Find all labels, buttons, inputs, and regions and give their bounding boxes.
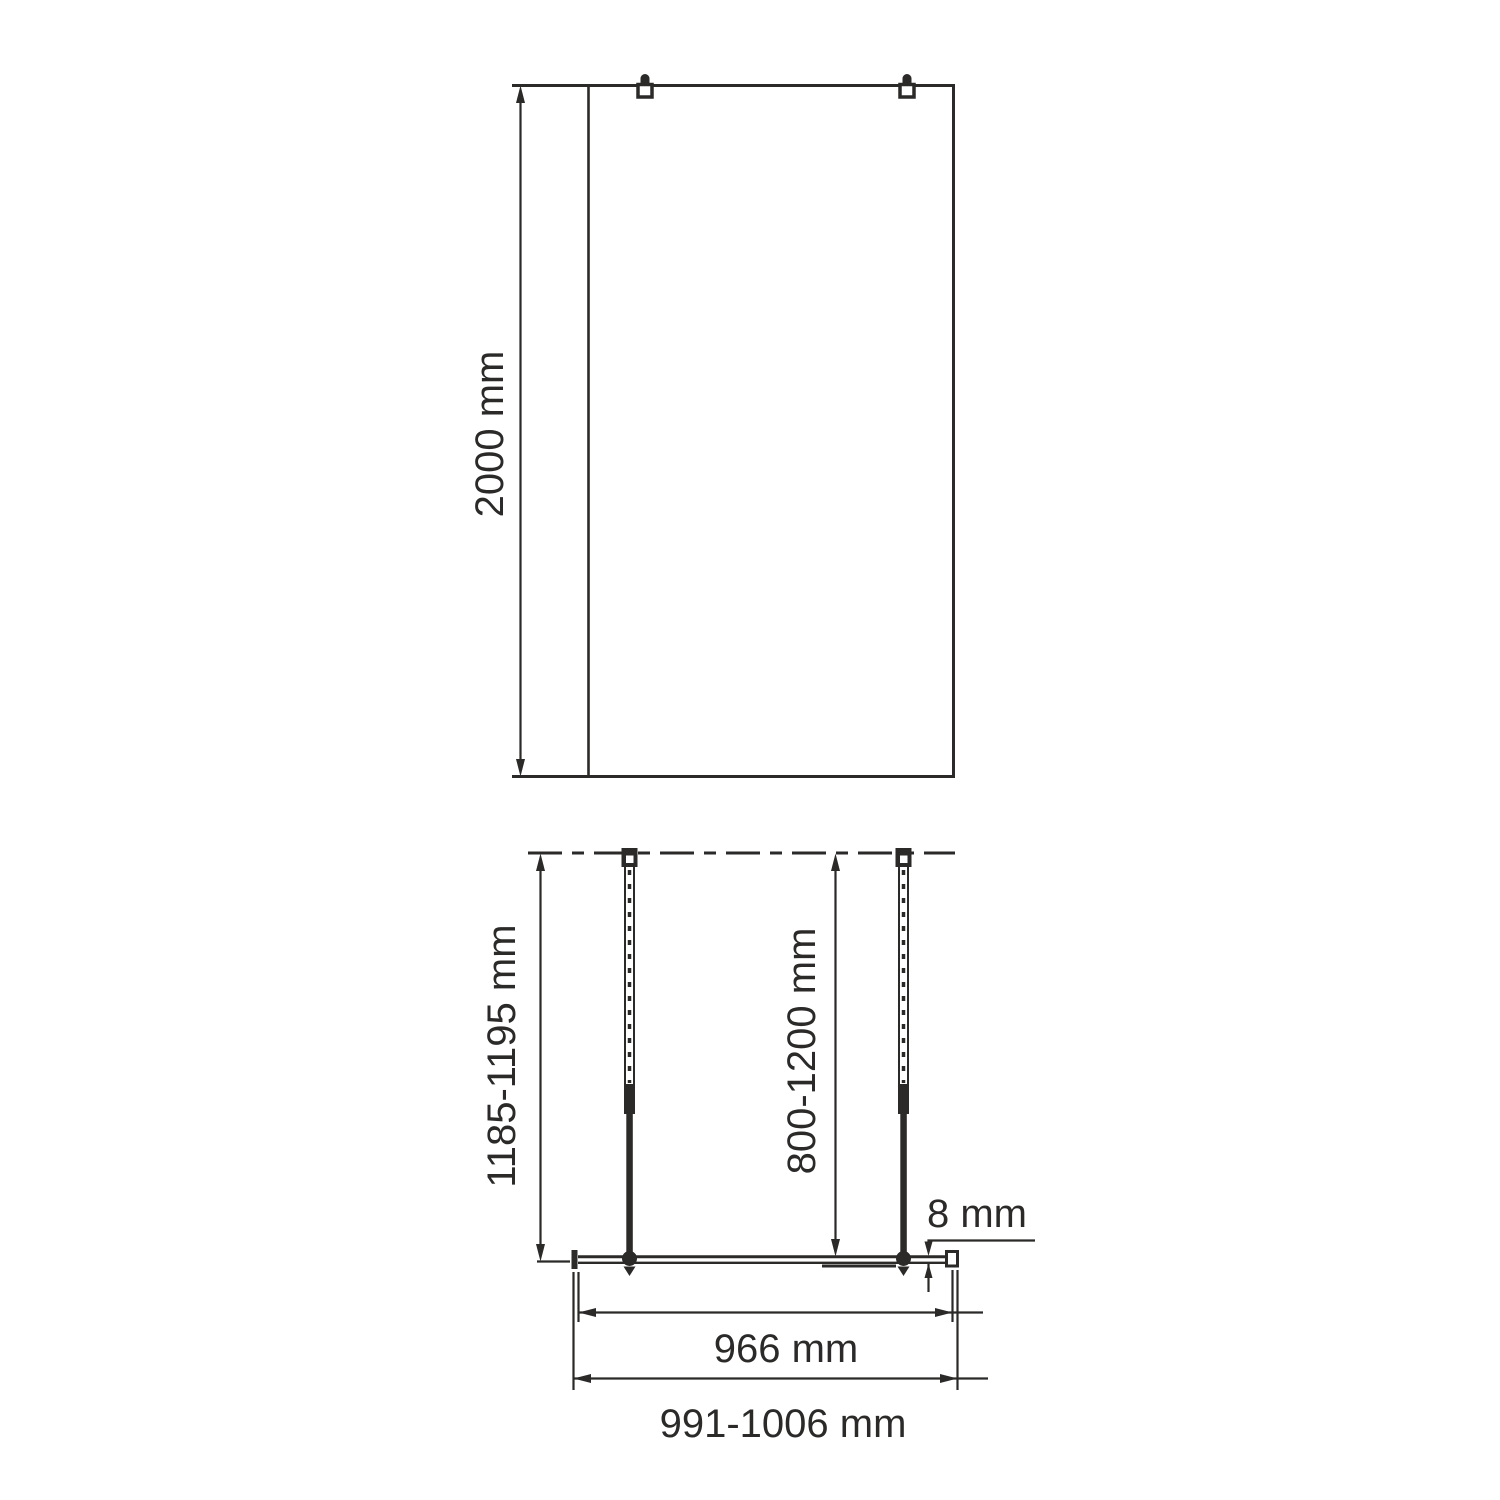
bar-length-dimension: 800-1200 mm [780, 854, 840, 1257]
overall-width-dimension: 991-1006 mm [573, 1374, 988, 1446]
depth-dimension: 1185-1195 mm [480, 854, 570, 1262]
plan-view: 1185-1195 mm 800-1200 mm [480, 848, 1035, 1446]
clamp-knob [641, 74, 650, 84]
arrow-up-icon [831, 854, 840, 872]
arrow-up-icon [536, 854, 545, 872]
glass-thickness-dimension: 8 mm [925, 1192, 1036, 1292]
glass-panel-outline [512, 84, 955, 778]
glass-width-dimension: 966 mm [578, 1308, 983, 1371]
glass-width-label: 966 mm [714, 1327, 859, 1371]
arrow-right-icon [940, 1374, 958, 1383]
arrow-left-icon [574, 1374, 592, 1383]
height-dimension: 2000 mm [468, 86, 525, 777]
technical-drawing: 2000 mm 1185-1195 mm 800-1200 mm [0, 0, 1500, 1500]
wall-clamp-left [638, 74, 652, 97]
clamp-knob [903, 74, 912, 84]
front-view: 2000 mm [468, 74, 955, 778]
arrow-up-icon [516, 86, 525, 104]
bar-rod [900, 1113, 907, 1254]
overall-width-label: 991-1006 mm [660, 1402, 907, 1446]
bar-sleeve [624, 1085, 635, 1114]
arrow-up-icon [925, 1264, 933, 1279]
glass-end-profile-right [947, 1252, 958, 1267]
drawing-canvas: 2000 mm 1185-1195 mm 800-1200 mm [0, 0, 1500, 1500]
arrow-right-icon [935, 1308, 953, 1317]
arrow-down-icon [831, 1239, 840, 1257]
arrow-down-icon [536, 1244, 545, 1262]
arrow-down-icon [516, 759, 525, 777]
wall-clamp-right [900, 74, 914, 97]
bar-rod [626, 1113, 633, 1254]
glass-thickness-label: 8 mm [927, 1192, 1027, 1236]
arrow-left-icon [579, 1308, 597, 1317]
arrow-down-icon [925, 1242, 933, 1257]
support-bar-left [622, 848, 638, 1276]
glass-end-profile-left [572, 1250, 578, 1269]
height-dimension-label: 2000 mm [468, 351, 512, 518]
support-bar-right [896, 848, 912, 1276]
bar-sleeve [898, 1085, 909, 1114]
depth-dimension-label: 1185-1195 mm [480, 924, 524, 1187]
bar-length-dimension-label: 800-1200 mm [780, 928, 824, 1175]
